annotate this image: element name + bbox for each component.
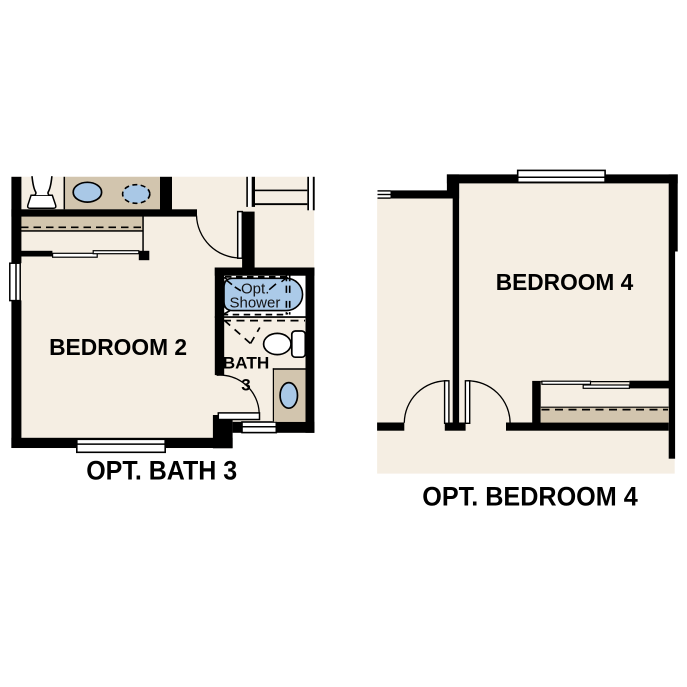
svg-text:BATH: BATH: [223, 353, 270, 372]
svg-text:Shower: Shower: [229, 295, 280, 312]
svg-text:OPT. BEDROOM 4: OPT. BEDROOM 4: [422, 481, 638, 511]
svg-text:OPT. BATH 3: OPT. BATH 3: [86, 455, 237, 485]
svg-text:BEDROOM 4: BEDROOM 4: [496, 269, 634, 295]
svg-text:3: 3: [241, 375, 250, 394]
svg-text:BEDROOM 2: BEDROOM 2: [49, 334, 187, 360]
